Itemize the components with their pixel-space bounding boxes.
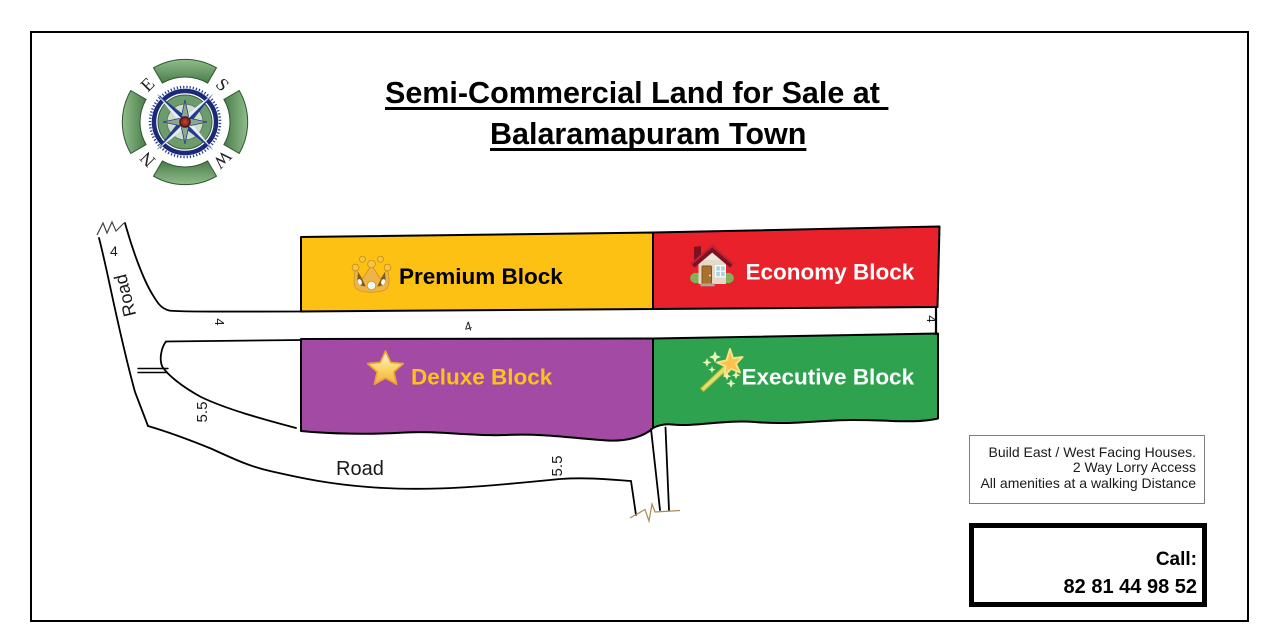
svg-text:4: 4 — [212, 318, 227, 325]
svg-text:4: 4 — [924, 315, 939, 322]
svg-text:Deluxe Block: Deluxe Block — [411, 365, 553, 390]
svg-text:Economy Block: Economy Block — [746, 260, 915, 285]
svg-text:W: W — [209, 146, 235, 172]
svg-text:Premium Block: Premium Block — [399, 264, 563, 289]
svg-text:4: 4 — [110, 243, 118, 259]
svg-text:4: 4 — [463, 318, 474, 334]
svg-text:5.5: 5.5 — [194, 402, 211, 423]
svg-text:5.5: 5.5 — [549, 456, 566, 477]
svg-text:Road: Road — [336, 458, 384, 480]
svg-text:E: E — [137, 74, 159, 96]
svg-text:S: S — [212, 74, 233, 95]
svg-text:Executive Block: Executive Block — [742, 365, 915, 390]
svg-text:N: N — [136, 148, 159, 171]
